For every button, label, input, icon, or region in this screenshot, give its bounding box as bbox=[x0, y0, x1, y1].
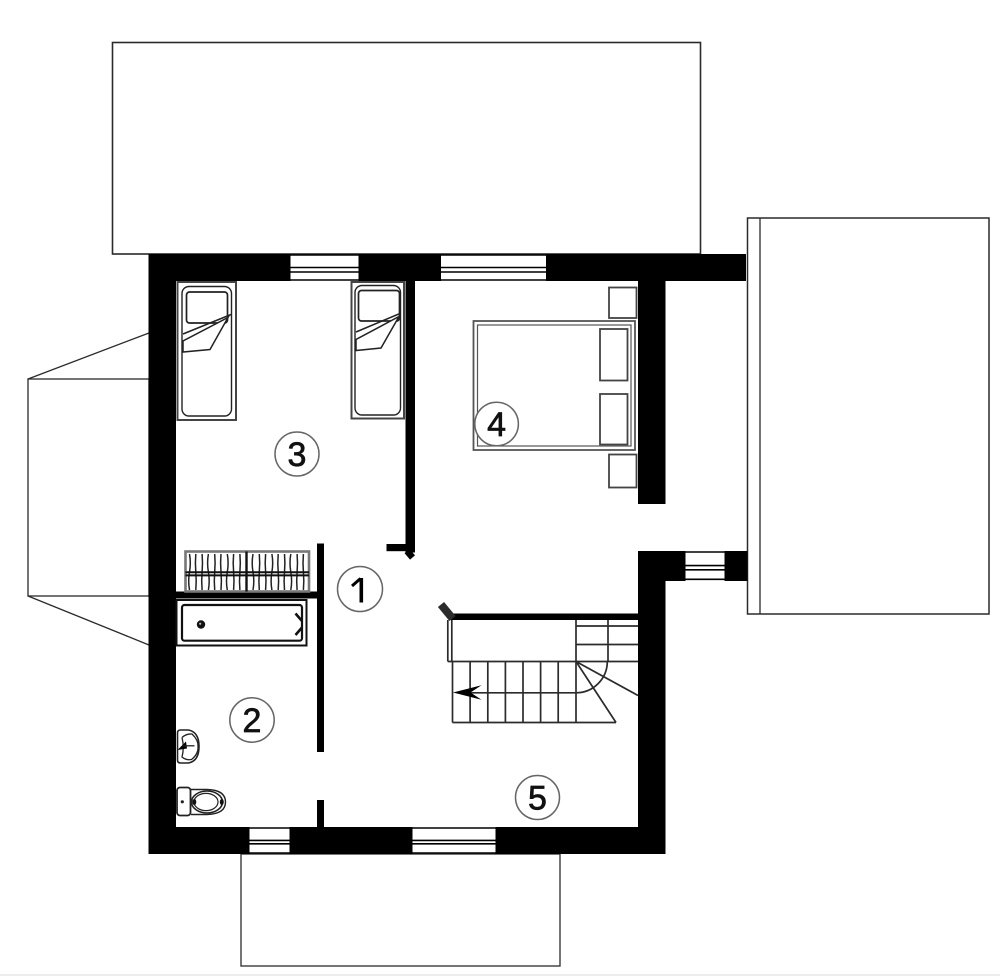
svg-text:5: 5 bbox=[528, 780, 547, 818]
svg-text:2: 2 bbox=[243, 702, 262, 740]
svg-text:4: 4 bbox=[487, 406, 506, 444]
svg-text:3: 3 bbox=[288, 436, 307, 474]
